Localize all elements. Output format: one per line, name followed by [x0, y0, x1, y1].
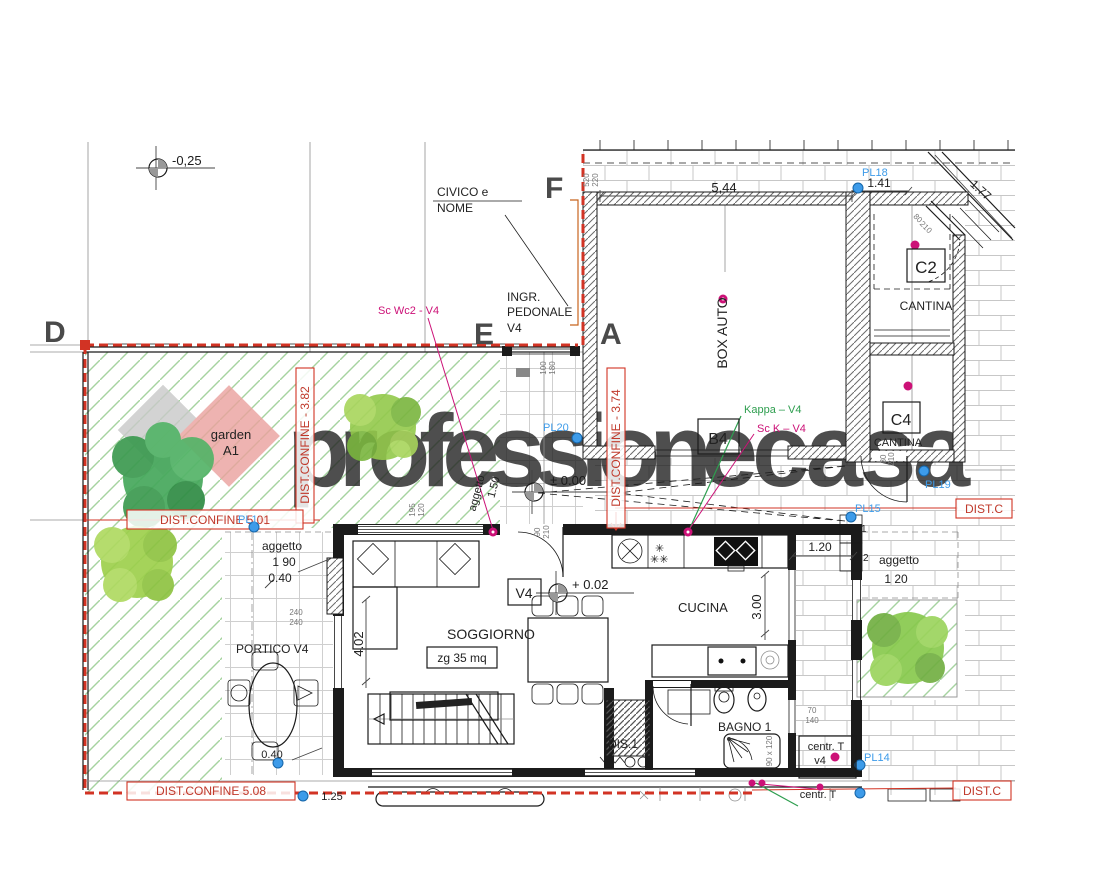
- section-letter-d: D: [44, 316, 66, 349]
- civico-label-1: CIVICO e: [437, 185, 489, 199]
- room-portico: PORTICO V4: [236, 642, 309, 656]
- pl15-label: PL15: [855, 503, 881, 515]
- pl20-label: PL20: [543, 422, 569, 434]
- level-street: -0,25: [172, 153, 202, 168]
- tree-right: [867, 612, 948, 686]
- room-b4-code: B4: [708, 431, 728, 448]
- floor-plan-svg: professione casa: [0, 0, 1100, 869]
- room-soggiorno: SOGGIORNO: [447, 626, 535, 642]
- dim-aggetto-040-value: 0.40: [268, 571, 292, 585]
- dim-aggetto-120-label: aggetto: [879, 553, 919, 567]
- section-letter-e: E: [474, 318, 494, 351]
- ingresso-label-3: V4: [507, 321, 522, 335]
- dim-gate-100: 100: [539, 361, 548, 375]
- dim-220: 220: [591, 173, 600, 187]
- room-c4-code: C4: [891, 412, 912, 429]
- note-sc-k: Sc K – V4: [757, 423, 806, 435]
- section-letter-a: A: [600, 318, 622, 351]
- dining-table: [528, 596, 608, 704]
- dim-aggetto-190-value: 1 90: [272, 555, 296, 569]
- hob-symbol-2: ✳✳: [650, 554, 668, 566]
- dim-040-bottom: 0.40: [261, 749, 282, 761]
- floor-plan: professione casa: [0, 0, 1100, 869]
- dist-confine-right-1: DIST.C: [965, 502, 1003, 516]
- dim-70: 70: [808, 706, 817, 715]
- civico-label-2: NOME: [437, 201, 473, 215]
- dim-win-120: 120: [417, 503, 426, 517]
- tree-light-green-left: [94, 526, 177, 602]
- pl1-label: PL1: [238, 514, 258, 526]
- dim-gate-180: 180: [548, 361, 557, 375]
- dist-confine-508: DIST.CONFINE 5.08: [156, 784, 266, 798]
- room-v4-code: V4: [515, 585, 532, 601]
- centrale-label-1a: centr. T: [808, 741, 845, 753]
- room-soggiorno-mq: zg 35 mq: [437, 651, 486, 665]
- dim-door-210: 210: [542, 525, 551, 539]
- ingresso-label-1: INGR.: [507, 290, 540, 304]
- dist-confine-382: DIST.CONFINE - 3.82: [298, 386, 312, 504]
- dim-300: 3.00: [749, 594, 764, 619]
- dim-520: 520: [582, 173, 591, 187]
- dim-544: 5,44: [711, 180, 736, 195]
- garden-label-2: A1: [223, 443, 239, 458]
- dim-402: 4.02: [351, 631, 366, 656]
- centrale-label-1b: v4: [814, 755, 826, 767]
- room-c4-name: CANTINA: [874, 437, 923, 449]
- note-kappa: Kappa – V4: [744, 404, 802, 416]
- dist-confine-right-2: DIST.C: [963, 784, 1001, 798]
- ingresso-label-2: PEDONALE: [507, 305, 572, 319]
- centrale-label-2: centr. T: [800, 789, 837, 801]
- dim-141: 1.41: [867, 176, 891, 190]
- tv-cabinet: [390, 692, 498, 720]
- level-zero: ± 0.00: [550, 473, 586, 488]
- room-c2-name: CANTINA: [900, 299, 953, 313]
- room-dis: DIS.1: [608, 737, 638, 751]
- pl14-label: PL14: [864, 752, 890, 764]
- tree-yellow-green: [344, 394, 421, 461]
- dim-c4-210: 210: [887, 452, 896, 466]
- dim-120m: 1.20: [808, 540, 832, 554]
- section-letter-f: F: [545, 172, 563, 205]
- room-cucina: CUCINA: [678, 600, 728, 615]
- room-bagno: BAGNO 1: [718, 720, 772, 734]
- kitchen-counter: ✳ ✳✳: [612, 535, 788, 571]
- dim-240a: 240: [289, 608, 303, 617]
- dim-140: 140: [805, 716, 819, 725]
- room-box-auto: BOX AUTO: [714, 297, 730, 368]
- dim-125: 1.25: [321, 791, 342, 803]
- dist-confine-374: DIST.CONFINE - 3.74: [609, 389, 623, 507]
- garden-label-1: garden: [211, 427, 251, 442]
- pl19-label: PL19: [925, 479, 951, 491]
- dim-aggetto-190-label: aggetto: [262, 539, 302, 553]
- step-2: 2: [863, 553, 869, 564]
- level-interior: + 0.02: [572, 577, 609, 592]
- dim-aggetto-120-value: 1 20: [884, 572, 908, 586]
- dim-win-195: 195: [408, 503, 417, 517]
- room-c2-code: C2: [915, 258, 937, 277]
- kitchen-island: [652, 645, 788, 714]
- shower-dim: 90 x 120: [765, 735, 774, 766]
- note-sc-wc2: Sc Wc2 - V4: [378, 305, 439, 317]
- dim-door-90: 90: [533, 527, 542, 536]
- dim-240b: 240: [289, 618, 303, 627]
- step-1: 1: [861, 524, 867, 535]
